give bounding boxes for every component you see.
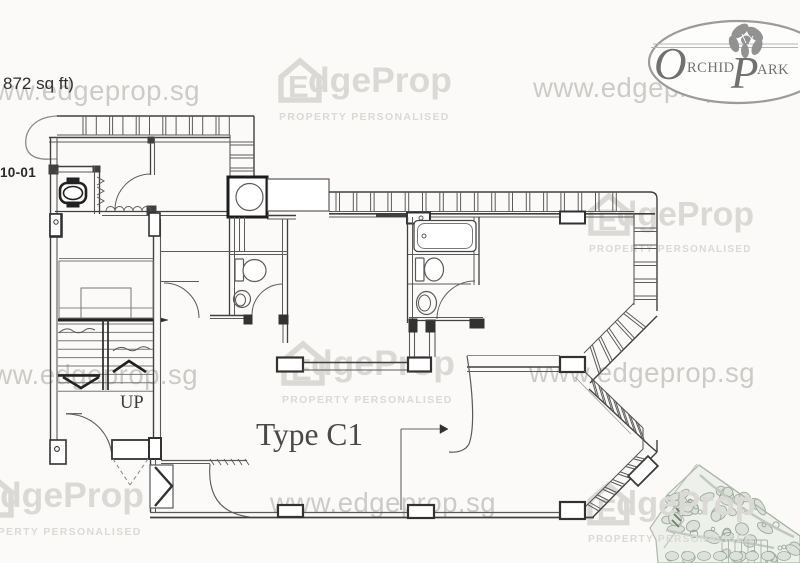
svg-text:872 sq ft): 872 sq ft) [3, 74, 74, 93]
svg-text:ARK: ARK [757, 62, 789, 78]
svg-text:PROPERTY PERSONALISED: PROPERTY PERSONALISED [282, 394, 453, 406]
svg-text:P: P [730, 48, 759, 98]
svg-text:RCHID: RCHID [687, 60, 735, 76]
svg-text:dgeProp: dgeProp [616, 485, 756, 523]
svg-text:10-01: 10-01 [0, 165, 36, 180]
svg-text:Type C1: Type C1 [256, 417, 363, 452]
svg-text:UP: UP [120, 393, 144, 413]
svg-text:E: E [288, 69, 309, 104]
svg-text:PROPERTY PERSONALISED: PROPERTY PERSONALISED [279, 111, 450, 123]
svg-text:PROPERTY PERSONALISED: PROPERTY PERSONALISED [588, 534, 753, 545]
svg-text:dgeProp: dgeProp [0, 475, 144, 515]
svg-text:PROPERTY PERSONALISED: PROPERTY PERSONALISED [589, 244, 752, 255]
svg-text:PROPERTY PERSONALISED: PROPERTY PERSONALISED [0, 526, 142, 538]
svg-text:O: O [654, 39, 687, 89]
svg-text:E: E [598, 204, 618, 237]
svg-text:dgeProp: dgeProp [308, 60, 452, 100]
